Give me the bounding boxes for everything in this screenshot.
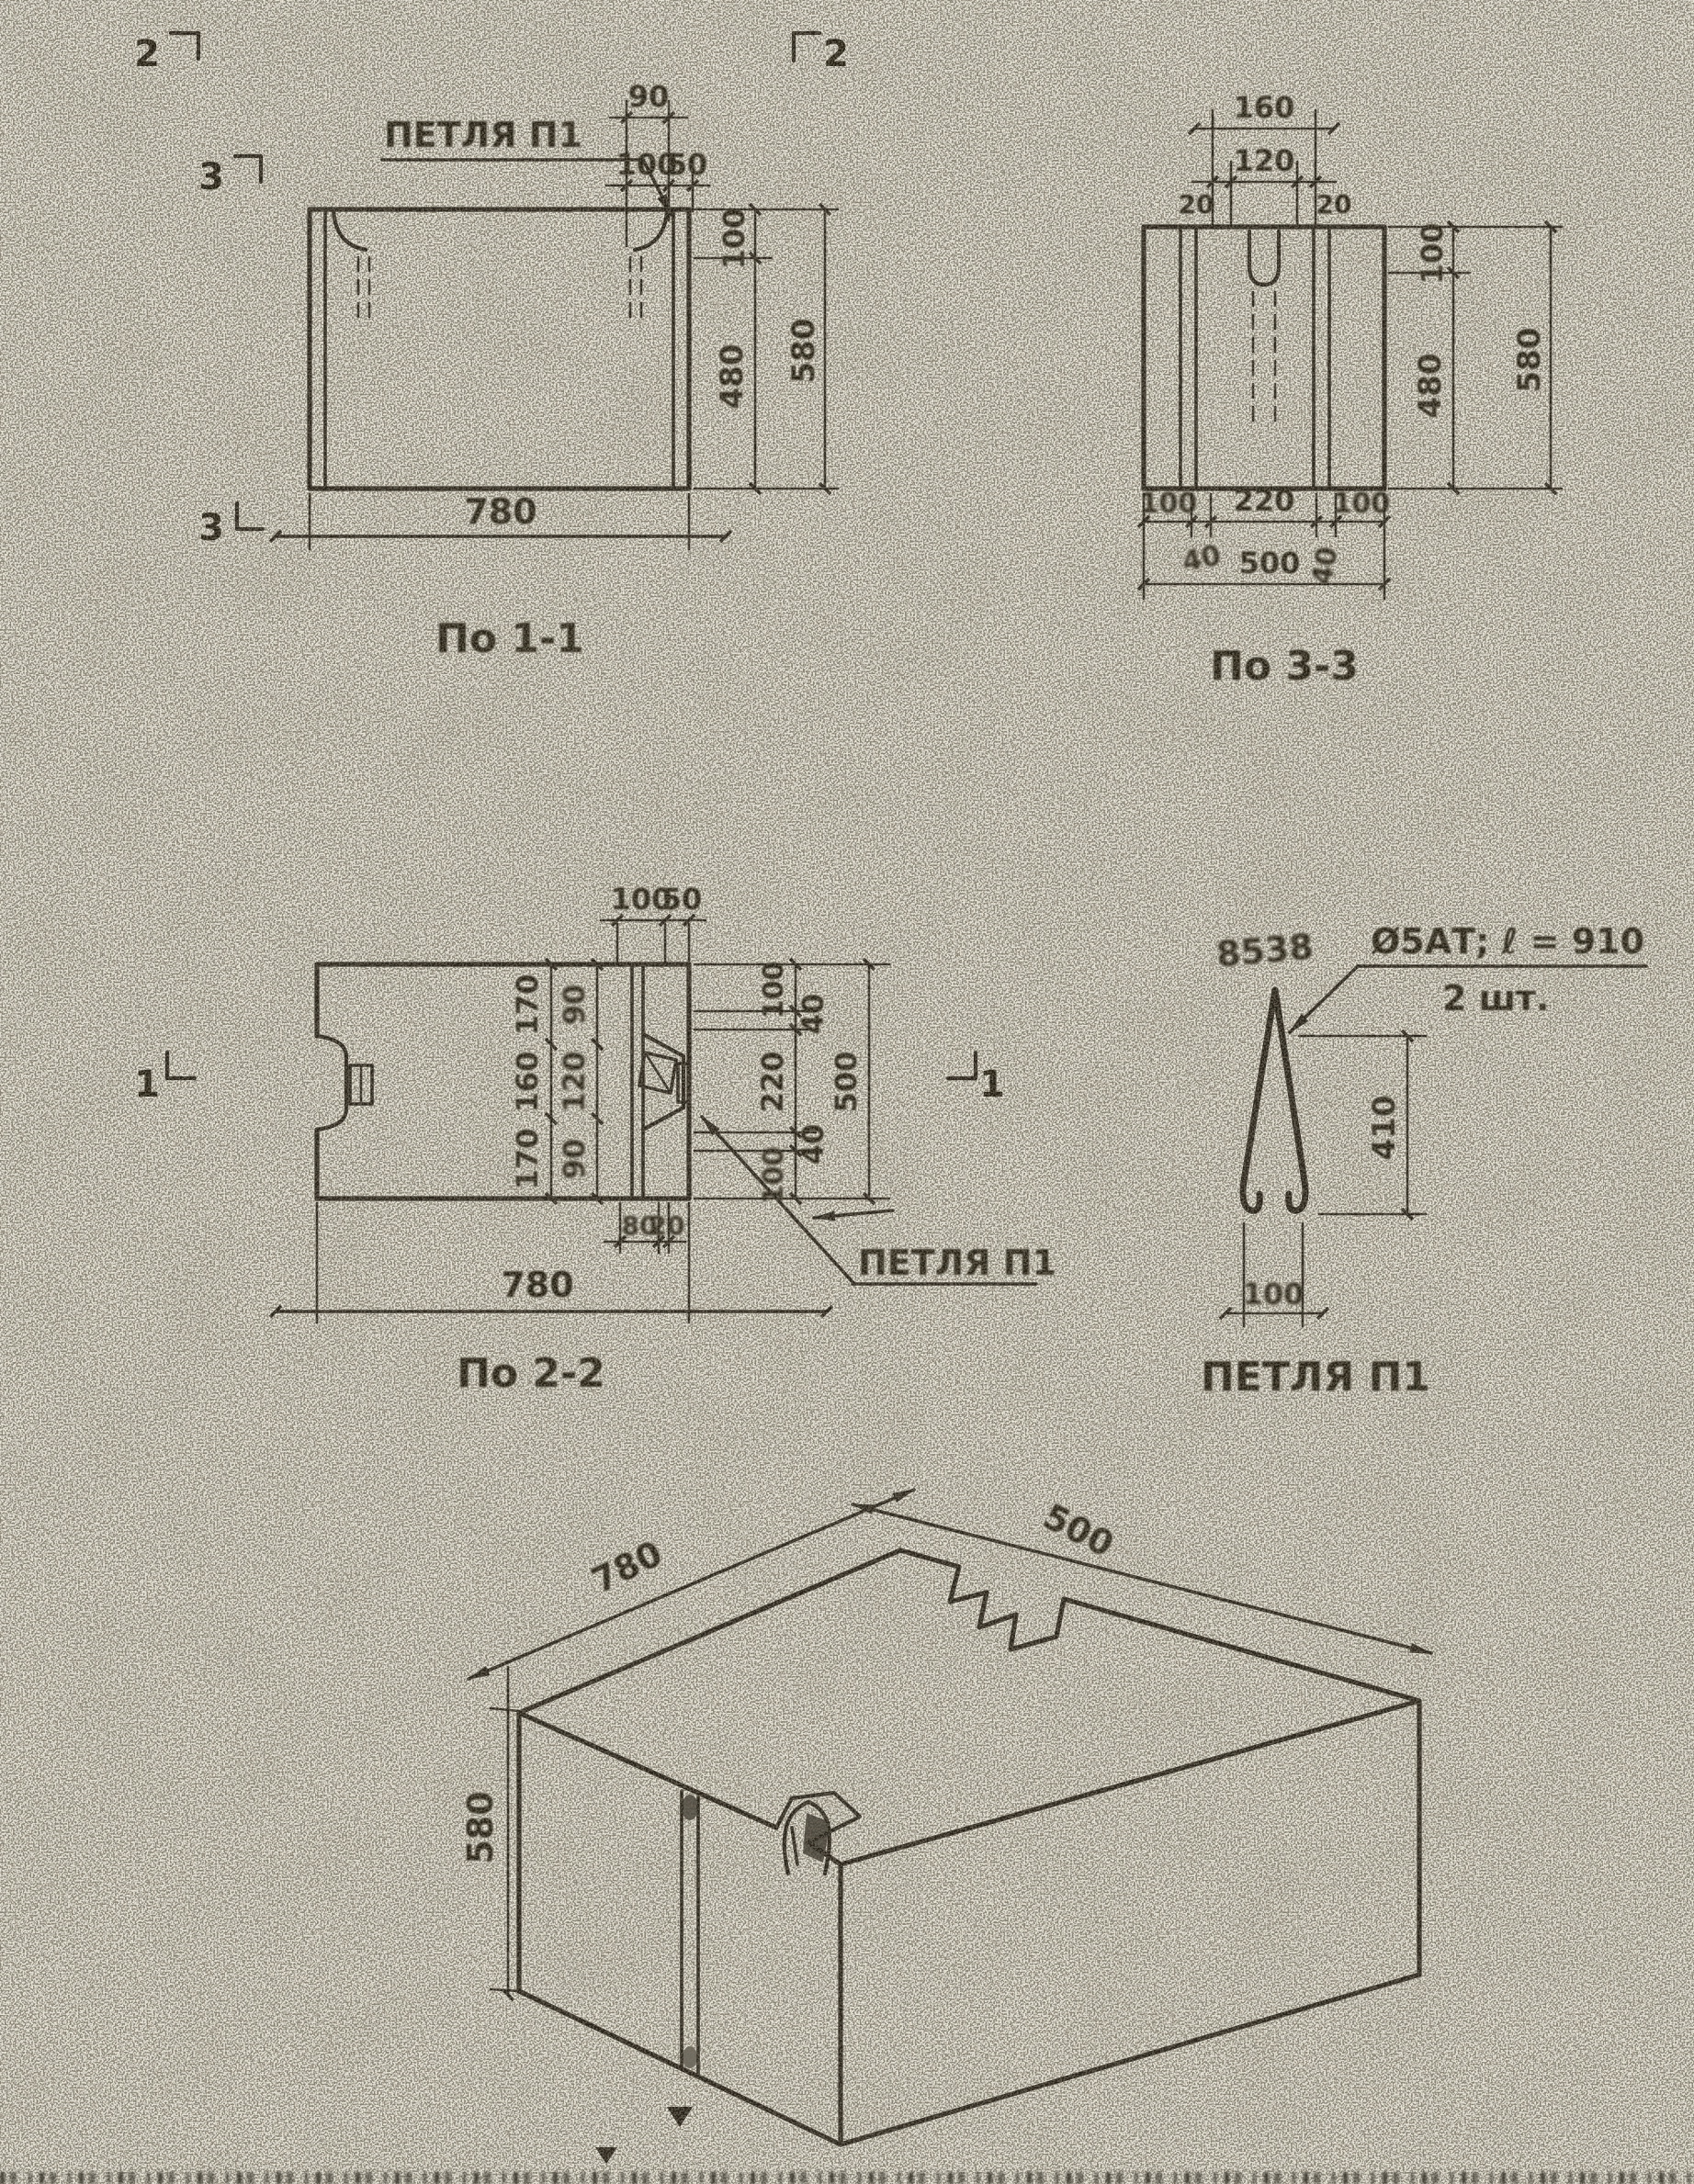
- view-2-2: 170 160 170 90 120 90 100 50 100 40: [276, 882, 1056, 1397]
- dim-160: 160: [1234, 90, 1295, 125]
- iso-dim-780: 780: [585, 1533, 669, 1601]
- loop-wire: [1243, 990, 1305, 1210]
- view-3-3: 160 20 120 20 100 480 580 100 220: [1140, 90, 1562, 690]
- view-3-3-dims-top: 160 20 120 20: [1179, 90, 1352, 227]
- section-markers: 2 2 3 3 1 1: [134, 33, 1005, 1106]
- dim-170-bot: 170: [510, 1129, 545, 1190]
- dim-100-right: 100: [717, 208, 751, 270]
- section-1-bracket-left: [167, 1053, 195, 1078]
- dim-120: 120: [1234, 143, 1295, 178]
- dim-100-bot-right: 100: [1333, 488, 1391, 520]
- section-2-marker-right: 2: [823, 33, 849, 75]
- loop-spec-text: Ø5АТ; ℓ = 910: [1371, 921, 1644, 962]
- dim-120-mid: 120: [557, 1052, 592, 1113]
- dim-580-right: 580: [1511, 328, 1548, 393]
- view-3-3-dims-right: 100 480 580: [1389, 223, 1562, 489]
- dim-r-40-bot: 40: [796, 1124, 830, 1165]
- triangle-mark-2: [595, 2147, 617, 2164]
- dim-100-bot-left: 100: [1140, 488, 1198, 520]
- dim-r-100-top: 100: [758, 962, 790, 1019]
- dim-500-bot: 500: [1239, 546, 1301, 580]
- dim-100-right: 100: [1415, 223, 1450, 285]
- section-1-marker-left: 1: [134, 1064, 160, 1106]
- cutoff-text-smudge: [0, 2172, 1694, 2184]
- dim-r-220: 220: [755, 1052, 790, 1113]
- dim-40-bot-right: 40: [1306, 545, 1345, 588]
- loop-callout-label: ПЕТЛЯ П1: [858, 1243, 1056, 1283]
- loop-detail: 8538 Ø5АТ; ℓ = 910 2 шт. 410 100 ПЕТЛЯ П…: [1201, 921, 1646, 1401]
- dim-480-right: 480: [714, 344, 751, 410]
- dim-160-mid: 160: [510, 1052, 545, 1113]
- dim-50-top: 50: [661, 882, 703, 917]
- dim-20-left: 20: [1179, 189, 1214, 220]
- loop-spec-callout: Ø5АТ; ℓ = 910 2 шт.: [1290, 921, 1646, 1032]
- loop-callout-label: ПЕТЛЯ П1: [384, 115, 582, 155]
- section-1-marker-right: 1: [979, 1064, 1005, 1106]
- section-2-bracket-right: [794, 33, 819, 61]
- section-3-bracket-top: [235, 156, 261, 182]
- dim-90-top: 90: [557, 985, 592, 1026]
- view-1-1-dims-bottom: 780: [276, 491, 726, 549]
- iso-dim-580: 580: [460, 1791, 501, 1863]
- dim-r-40-top: 40: [796, 994, 830, 1035]
- view-3-3-outline: [1144, 227, 1384, 489]
- view-2-2-caption: По 2-2: [457, 1350, 605, 1397]
- dim-90: 90: [628, 79, 670, 114]
- section-3-marker-bottom: 3: [198, 507, 224, 549]
- dim-50-top: 50: [667, 147, 708, 182]
- section-3-bracket-bottom: [237, 503, 263, 529]
- dim-410: 410: [1366, 1096, 1403, 1161]
- view-2-2-outline: [317, 964, 689, 1199]
- stray-marks: [595, 2107, 693, 2164]
- section-1-bracket-right: [948, 1053, 976, 1078]
- view-1-1: ПЕТЛЯ П1 90 100 50 100 480 580: [276, 79, 838, 662]
- iso-block-outline: [519, 1550, 1419, 2145]
- dim-220-bot: 220: [1234, 483, 1295, 518]
- dim-r-500: 500: [829, 1052, 864, 1113]
- loop-note-mark: 8538: [1214, 927, 1315, 975]
- view-2-2-dims-bottom: 80 20 780: [276, 1203, 827, 1323]
- scanned-blueprint-page: { "markers": { "sec2_left": "2", "sec2_r…: [0, 0, 1694, 2184]
- dim-780-bottom: 780: [501, 1265, 573, 1305]
- isometric-view: 780 500 580: [460, 1490, 1431, 2145]
- dim-20-right: 20: [1316, 189, 1352, 220]
- view-1-1-outline: [310, 209, 689, 489]
- view-2-2-dims-internal: 170 160 170 90 120 90: [510, 964, 597, 1199]
- dim-20: 20: [649, 1210, 685, 1241]
- view-1-1-dims-top: 90 100 50: [606, 79, 709, 246]
- dim-90-bot: 90: [557, 1139, 592, 1180]
- loop-qty-text: 2 шт.: [1442, 978, 1550, 1019]
- blueprint-drawing: 2 2 3 3 1 1 ПЕТЛЯ П1: [0, 0, 1694, 2184]
- dim-780-bottom: 780: [464, 491, 536, 532]
- view-2-2-loop-callout: ПЕТЛЯ П1: [702, 1117, 1056, 1284]
- dim-170-top: 170: [510, 974, 545, 1036]
- section-3-marker-top: 3: [198, 156, 224, 198]
- view-1-1-dims-right: 100 480 580: [695, 208, 838, 489]
- view-1-1-caption: По 1-1: [435, 615, 584, 662]
- dim-100-loop: 100: [1243, 1277, 1304, 1312]
- triangle-mark-1: [667, 2107, 693, 2127]
- view-2-2-dims-right: 100 40 220 40 100 500: [695, 962, 893, 1218]
- dim-40-bot-left: 40: [1180, 539, 1224, 579]
- section-2-marker-left: 2: [134, 33, 160, 75]
- view-3-3-dims-bottom: 100 220 100 40 40 500: [1140, 483, 1391, 599]
- dim-480-right: 480: [1412, 354, 1449, 419]
- dim-580-right: 580: [785, 319, 822, 384]
- view-3-3-caption: По 3-3: [1210, 643, 1359, 690]
- section-2-bracket-left: [171, 33, 198, 59]
- loop-dims: 410 100: [1225, 1036, 1426, 1326]
- view-2-2-dims-top: 100 50: [601, 882, 706, 964]
- loop-detail-title: ПЕТЛЯ П1: [1201, 1354, 1430, 1401]
